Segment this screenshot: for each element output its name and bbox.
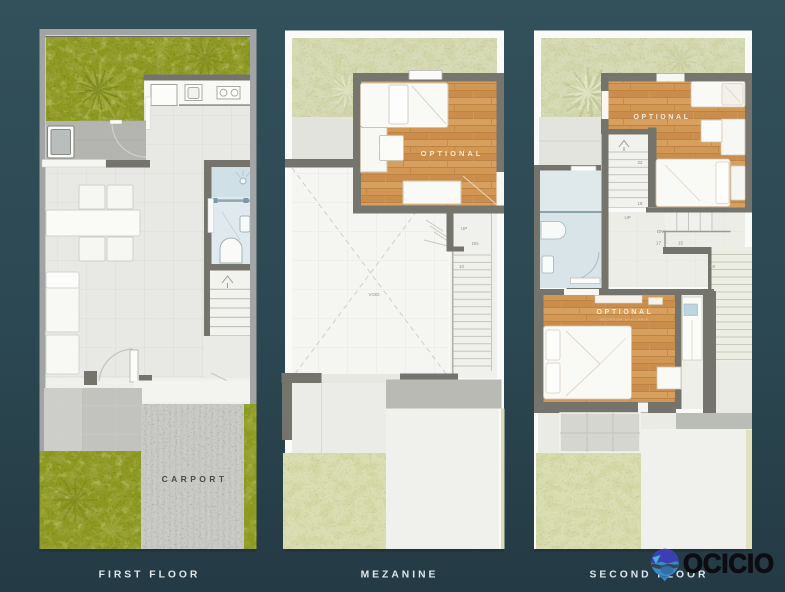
svg-text:10: 10 [710, 264, 716, 269]
svg-text:UP: UP [625, 215, 631, 220]
svg-text:UP: UP [461, 226, 467, 231]
svg-text:OPTIONAL: OPTIONAL [597, 309, 654, 316]
svg-text:OPTIONAL: OPTIONAL [421, 149, 484, 158]
svg-text:15: 15 [678, 241, 684, 246]
svg-text:18: 18 [637, 201, 643, 206]
svg-text:MEZANINE: MEZANINE [361, 570, 439, 581]
svg-text:DN: DN [472, 241, 479, 246]
svg-text:BEDROOM AVAILABLE: BEDROOM AVAILABLE [601, 318, 650, 322]
svg-text:22: 22 [637, 160, 643, 165]
svg-text:10: 10 [459, 264, 465, 269]
svg-text:DN: DN [657, 229, 664, 234]
svg-text:17: 17 [656, 241, 662, 246]
svg-text:VOID: VOID [368, 292, 380, 297]
svg-text:CARPORT: CARPORT [162, 474, 228, 484]
svg-text:OPTIONAL: OPTIONAL [634, 114, 691, 121]
svg-text:OCICIO: OCICIO [683, 549, 774, 579]
svg-text:FIRST FLOOR: FIRST FLOOR [99, 570, 201, 581]
